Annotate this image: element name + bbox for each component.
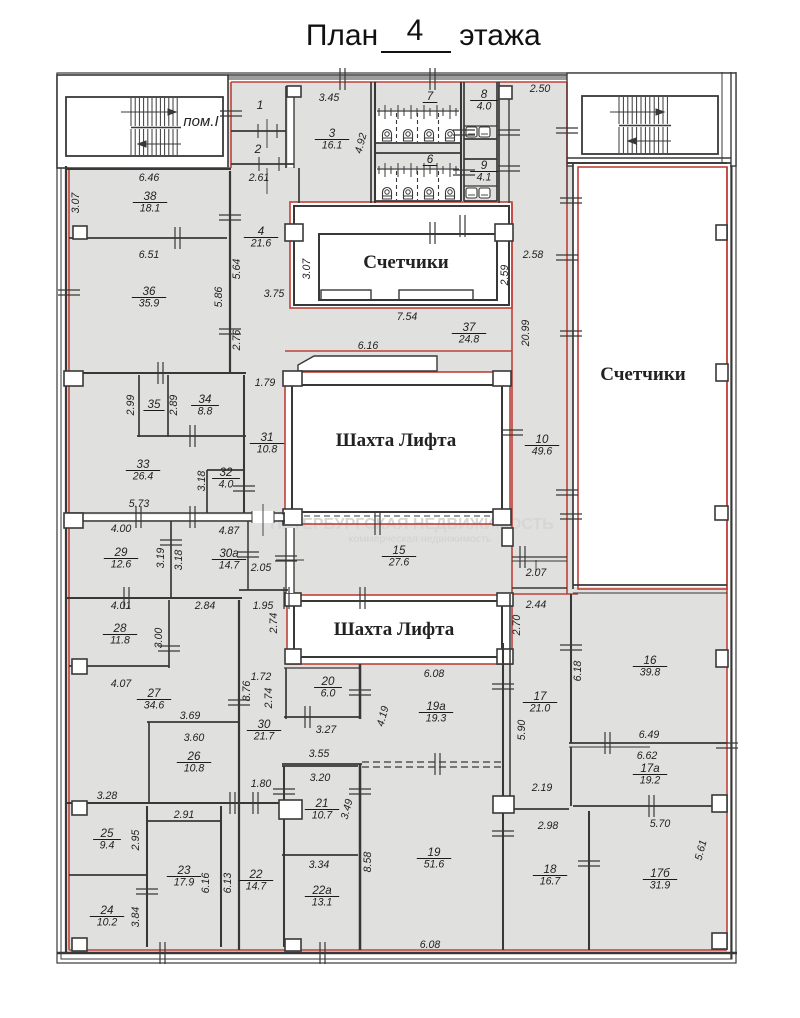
svg-text:31: 31: [261, 431, 274, 444]
svg-text:6.0: 6.0: [321, 688, 336, 700]
svg-text:21.7: 21.7: [253, 731, 276, 743]
svg-text:30: 30: [258, 718, 271, 731]
svg-text:3.00: 3.00: [153, 628, 165, 649]
svg-text:5.64: 5.64: [231, 259, 243, 280]
svg-text:17а: 17а: [640, 762, 660, 775]
svg-text:План: План: [306, 19, 378, 52]
svg-text:51.6: 51.6: [424, 859, 445, 871]
svg-text:3.75: 3.75: [264, 288, 285, 300]
svg-text:3.55: 3.55: [309, 748, 330, 760]
svg-text:37: 37: [463, 321, 476, 334]
svg-text:3.84: 3.84: [130, 907, 142, 928]
svg-text:17: 17: [534, 690, 547, 703]
svg-text:5.86: 5.86: [213, 287, 225, 308]
svg-text:8.58: 8.58: [362, 852, 374, 873]
svg-text:Счетчики: Счетчики: [600, 364, 686, 385]
svg-text:3.18: 3.18: [196, 471, 208, 492]
svg-text:24: 24: [100, 904, 114, 917]
svg-text:4.87: 4.87: [219, 525, 241, 537]
svg-text:6.62: 6.62: [637, 750, 658, 762]
svg-text:39.8: 39.8: [640, 667, 661, 679]
svg-text:7.54: 7.54: [397, 311, 418, 323]
svg-text:14.7: 14.7: [246, 881, 268, 893]
svg-text:3.28: 3.28: [97, 790, 118, 802]
svg-text:28: 28: [113, 622, 127, 635]
svg-text:14.7: 14.7: [219, 560, 241, 572]
svg-text:8.76: 8.76: [241, 681, 253, 702]
svg-text:3.69: 3.69: [180, 710, 201, 722]
svg-text:3.18: 3.18: [173, 550, 185, 571]
svg-text:этажа: этажа: [459, 19, 541, 52]
svg-text:27: 27: [147, 687, 161, 700]
svg-text:7: 7: [427, 90, 434, 103]
svg-text:3.45: 3.45: [319, 92, 340, 104]
svg-text:16.7: 16.7: [540, 876, 562, 888]
svg-text:33: 33: [137, 458, 150, 471]
svg-text:2.89: 2.89: [168, 395, 180, 417]
svg-text:3.60: 3.60: [184, 732, 205, 744]
svg-text:2.74: 2.74: [263, 688, 275, 710]
svg-text:18: 18: [544, 863, 557, 876]
svg-text:1: 1: [257, 98, 264, 112]
svg-text:5.73: 5.73: [129, 498, 150, 510]
svg-text:1.80: 1.80: [251, 778, 272, 790]
svg-text:34: 34: [199, 393, 212, 406]
svg-text:3.27: 3.27: [316, 724, 338, 736]
svg-text:20.99: 20.99: [520, 320, 532, 348]
svg-text:49.6: 49.6: [532, 446, 553, 458]
svg-text:4.1: 4.1: [477, 172, 492, 184]
svg-text:2.76: 2.76: [231, 330, 243, 352]
svg-text:10: 10: [536, 433, 549, 446]
svg-text:38: 38: [144, 190, 157, 203]
svg-text:36: 36: [143, 285, 156, 298]
svg-text:4.01: 4.01: [111, 600, 132, 612]
svg-text:5.90: 5.90: [516, 720, 528, 741]
svg-text:35.9: 35.9: [139, 298, 160, 310]
svg-text:6.49: 6.49: [639, 729, 660, 741]
svg-text:2.19: 2.19: [531, 782, 553, 794]
svg-text:23: 23: [177, 864, 191, 877]
svg-text:34.6: 34.6: [144, 700, 165, 712]
svg-text:21.6: 21.6: [250, 238, 272, 250]
svg-text:6.13: 6.13: [222, 873, 234, 894]
svg-text:Шахта Лифта: Шахта Лифта: [334, 619, 455, 640]
svg-text:4.0: 4.0: [477, 101, 492, 113]
svg-text:9.4: 9.4: [100, 840, 115, 852]
svg-text:6.46: 6.46: [139, 172, 160, 184]
svg-text:10.7: 10.7: [312, 810, 334, 822]
svg-text:20: 20: [321, 675, 335, 688]
svg-text:19.3: 19.3: [426, 713, 447, 725]
svg-text:пом.I: пом.I: [183, 113, 218, 130]
svg-text:35: 35: [148, 398, 161, 411]
svg-text:2.07: 2.07: [525, 567, 548, 579]
svg-text:4: 4: [407, 14, 424, 47]
svg-text:9: 9: [481, 159, 488, 172]
svg-text:17б: 17б: [650, 867, 670, 880]
svg-text:30а: 30а: [219, 547, 239, 560]
svg-text:1.72: 1.72: [251, 671, 272, 683]
svg-text:2.05: 2.05: [250, 562, 272, 574]
svg-text:21.0: 21.0: [529, 703, 551, 715]
svg-text:3: 3: [329, 127, 336, 140]
svg-text:коммерческая недвижимость: коммерческая недвижимость: [349, 533, 492, 545]
svg-text:32: 32: [220, 466, 233, 479]
svg-text:10.8: 10.8: [257, 444, 278, 456]
svg-text:19: 19: [428, 846, 441, 859]
svg-text:31.9: 31.9: [650, 880, 671, 892]
svg-text:2.50: 2.50: [529, 83, 551, 95]
svg-text:17.9: 17.9: [174, 877, 195, 889]
svg-text:19.2: 19.2: [640, 775, 661, 787]
svg-text:22: 22: [249, 868, 263, 881]
svg-text:3.20: 3.20: [310, 772, 331, 784]
svg-text:5.70: 5.70: [650, 818, 671, 830]
svg-text:6.08: 6.08: [420, 939, 441, 951]
svg-text:15: 15: [393, 544, 406, 557]
svg-text:2.99: 2.99: [125, 395, 137, 417]
svg-text:19а: 19а: [426, 700, 446, 713]
svg-text:4.07: 4.07: [111, 678, 133, 690]
svg-text:29: 29: [114, 546, 128, 559]
svg-text:16: 16: [644, 654, 657, 667]
svg-text:1.95: 1.95: [253, 600, 274, 612]
svg-text:11.8: 11.8: [110, 635, 130, 647]
svg-text:22а: 22а: [311, 884, 332, 897]
svg-text:2.61: 2.61: [248, 172, 270, 184]
svg-text:2.91: 2.91: [173, 809, 195, 821]
svg-text:3.07: 3.07: [70, 192, 82, 214]
svg-text:4.0: 4.0: [219, 479, 234, 491]
svg-text:2.58: 2.58: [522, 249, 544, 261]
svg-text:21: 21: [315, 797, 329, 810]
svg-text:13.1: 13.1: [312, 897, 333, 909]
svg-text:25: 25: [100, 827, 114, 840]
svg-text:2: 2: [254, 142, 262, 156]
svg-text:Шахта Лифта: Шахта Лифта: [336, 430, 457, 451]
svg-text:2.98: 2.98: [537, 820, 559, 832]
svg-text:3.34: 3.34: [309, 859, 330, 871]
svg-text:6.08: 6.08: [424, 668, 445, 680]
svg-text:6: 6: [427, 153, 434, 166]
svg-text:1.79: 1.79: [255, 377, 276, 389]
svg-text:16.1: 16.1: [322, 140, 343, 152]
svg-text:2.74: 2.74: [268, 613, 280, 635]
svg-text:2.59: 2.59: [499, 265, 511, 287]
svg-text:24.8: 24.8: [458, 334, 480, 346]
svg-text:6.51: 6.51: [139, 249, 160, 261]
svg-text:2.84: 2.84: [194, 600, 216, 612]
svg-text:6.18: 6.18: [572, 661, 584, 682]
svg-text:2.44: 2.44: [525, 599, 547, 611]
svg-text:3.19: 3.19: [155, 548, 167, 569]
svg-text:10.8: 10.8: [184, 763, 205, 775]
svg-text:6.16: 6.16: [200, 873, 212, 894]
svg-text:12.6: 12.6: [111, 559, 132, 571]
svg-text:18.1: 18.1: [140, 203, 161, 215]
svg-text:Счетчики: Счетчики: [363, 252, 449, 273]
svg-text:8: 8: [481, 88, 488, 101]
svg-text:26: 26: [187, 750, 201, 763]
svg-text:2.95: 2.95: [130, 830, 142, 852]
svg-text:27.6: 27.6: [388, 557, 410, 569]
svg-text:6.16: 6.16: [358, 340, 379, 352]
svg-text:3.07: 3.07: [301, 258, 313, 280]
svg-text:26.4: 26.4: [132, 471, 154, 483]
svg-text:8.8: 8.8: [198, 406, 213, 418]
svg-text:4: 4: [258, 225, 265, 238]
svg-text:2.70: 2.70: [511, 615, 523, 637]
svg-text:4.00: 4.00: [111, 523, 132, 535]
svg-text:10.2: 10.2: [97, 917, 118, 929]
